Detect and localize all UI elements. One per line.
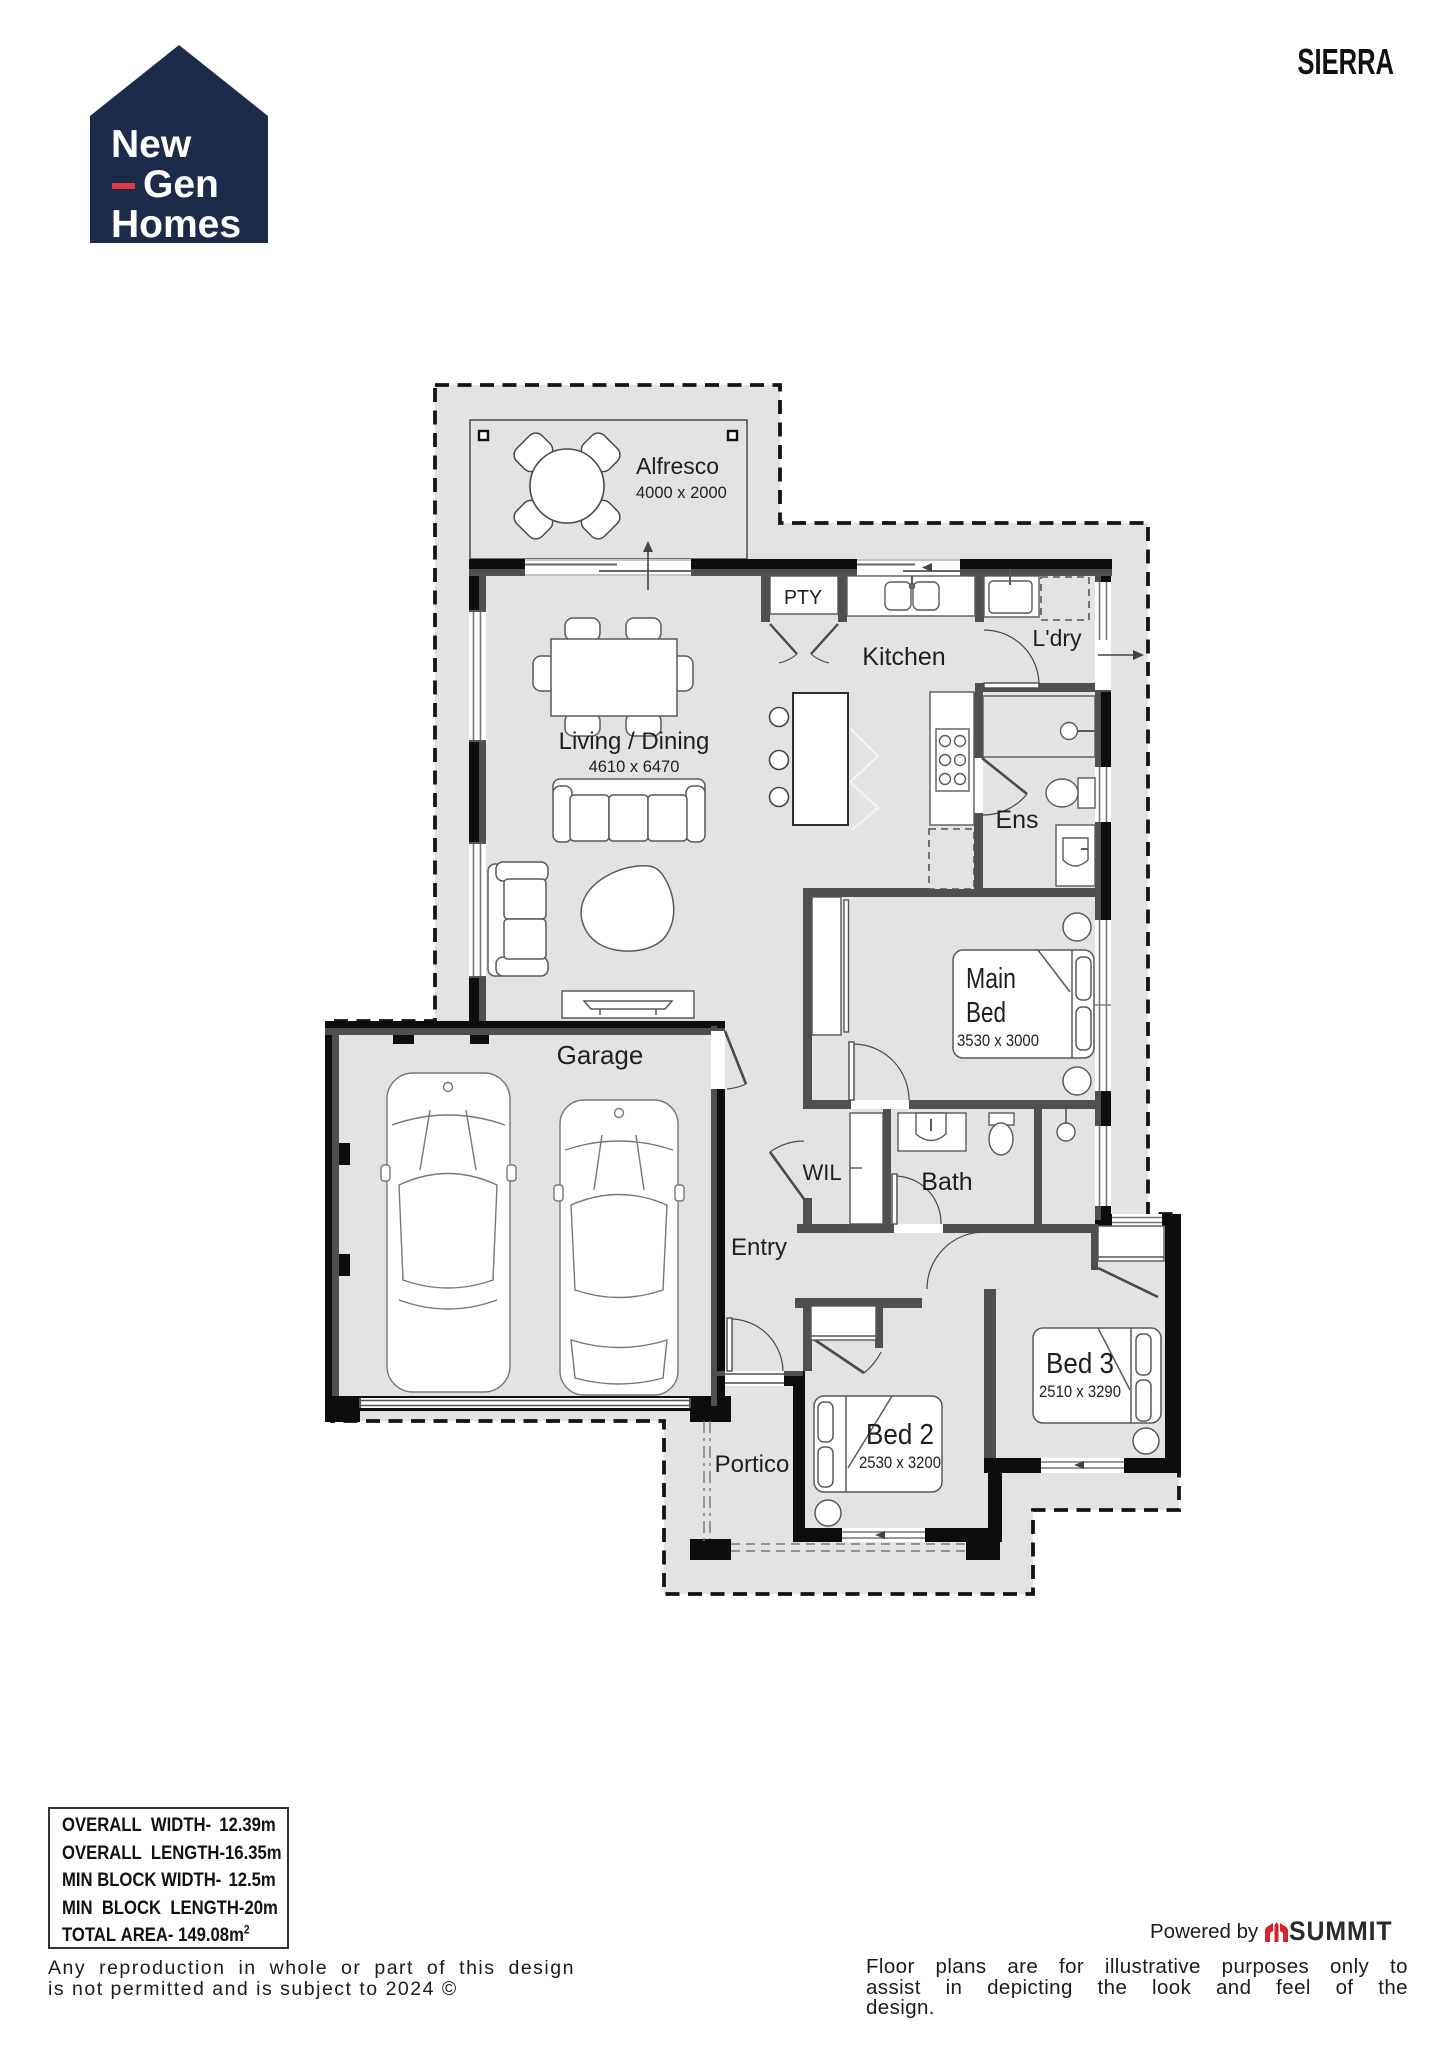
svg-text:Garage: Garage (557, 1040, 644, 1070)
svg-text:Kitchen: Kitchen (862, 643, 945, 671)
svg-text:3530 x 3000: 3530 x 3000 (957, 1031, 1039, 1050)
svg-text:Bed 3: Bed 3 (1046, 1348, 1114, 1380)
svg-text:2530 x 3200: 2530 x 3200 (859, 1453, 941, 1472)
svg-text:4610 x 6470: 4610 x 6470 (589, 758, 680, 776)
svg-text:Bed 2: Bed 2 (866, 1419, 934, 1451)
svg-text:Living / Dining: Living / Dining (559, 728, 710, 755)
svg-text:Portico: Portico (715, 1451, 790, 1478)
svg-text:Entry: Entry (731, 1234, 787, 1261)
svg-text:WIL: WIL (802, 1160, 841, 1185)
svg-text:Ens: Ens (995, 806, 1038, 834)
svg-text:Alfresco: Alfresco (636, 453, 719, 479)
svg-text:Bath: Bath (921, 1168, 972, 1196)
svg-text:4000 x 2000: 4000 x 2000 (636, 484, 727, 502)
svg-text:PTY: PTY (784, 587, 822, 609)
svg-text:Bed: Bed (966, 997, 1006, 1029)
svg-text:Main: Main (966, 963, 1016, 995)
svg-text:L'dry: L'dry (1032, 625, 1082, 651)
svg-text:2510 x 3290: 2510 x 3290 (1039, 1382, 1121, 1401)
